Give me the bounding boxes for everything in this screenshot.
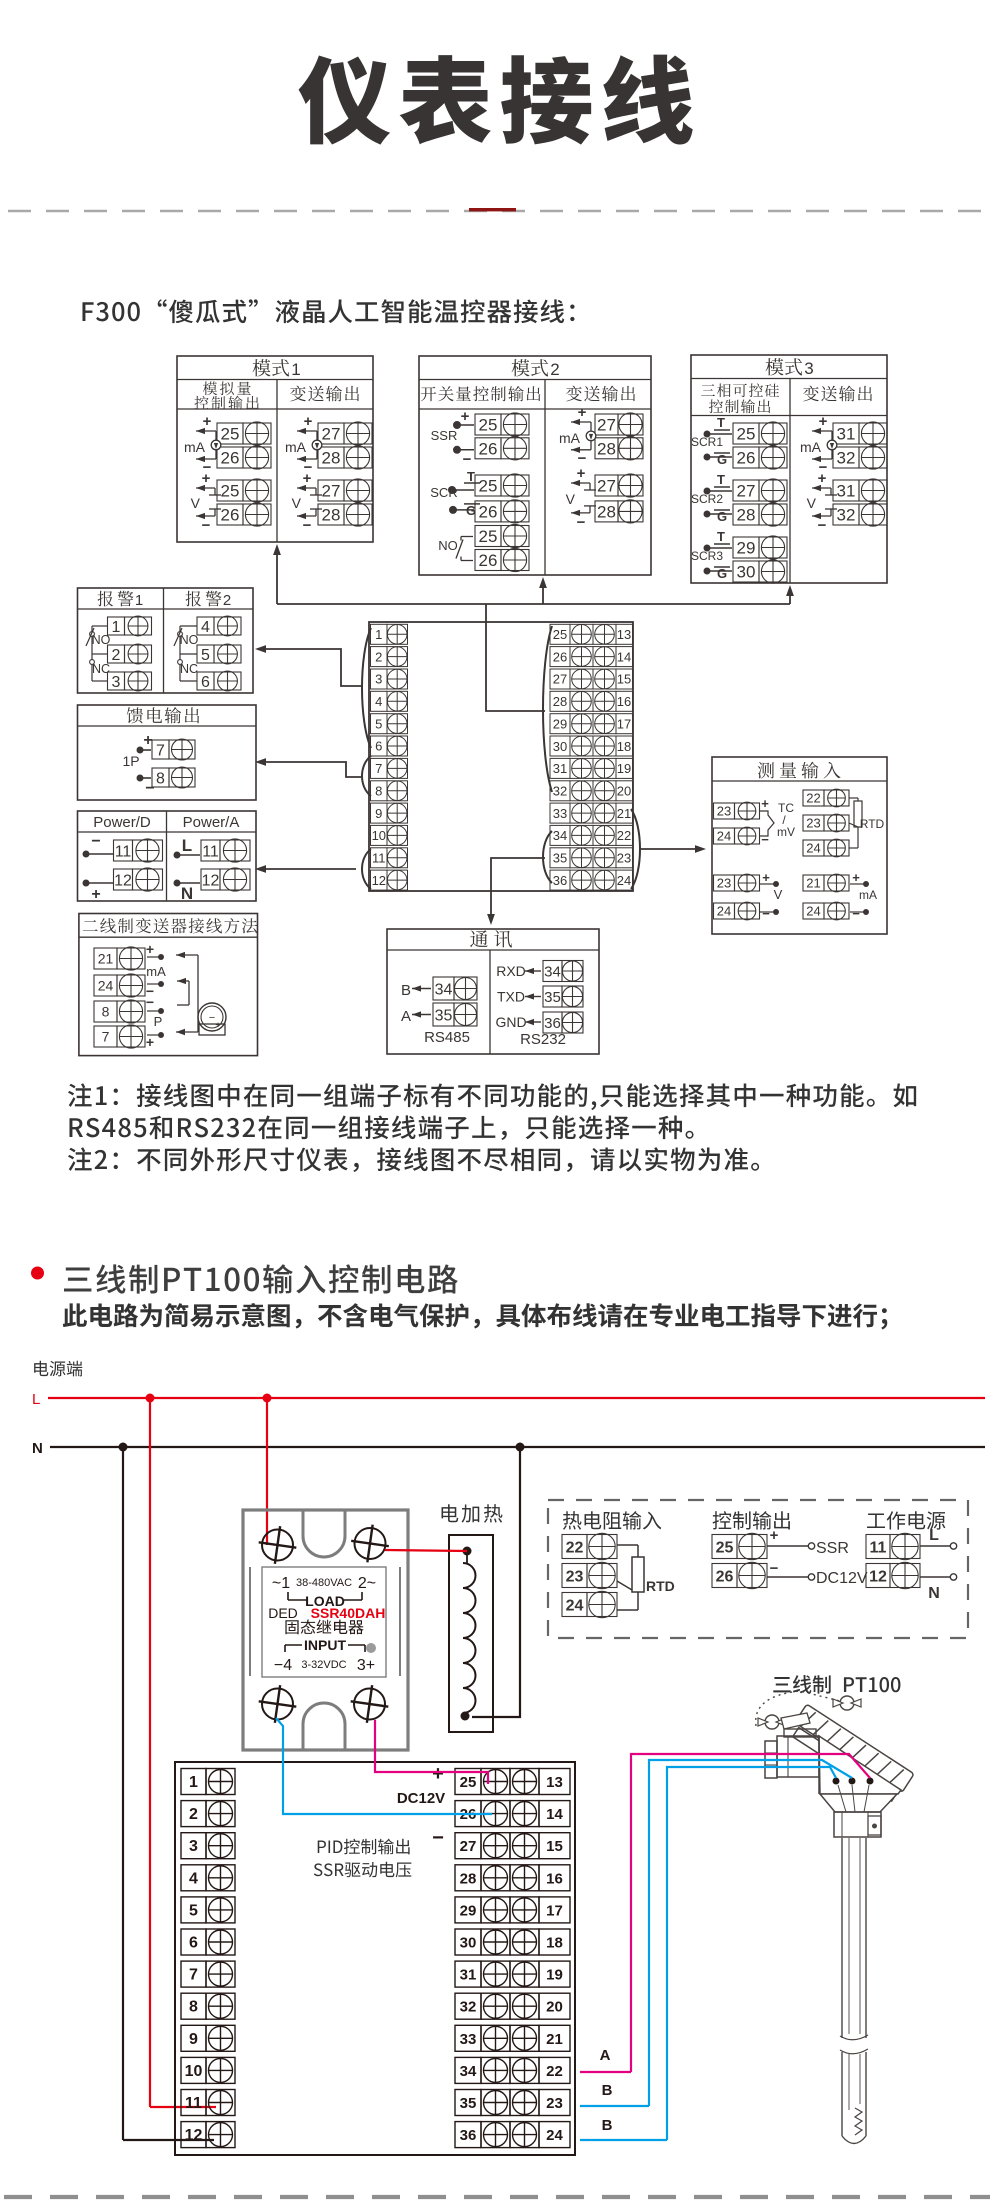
svg-text:−: − [146, 994, 154, 1010]
svg-text:9: 9 [189, 2031, 198, 2048]
svg-text:5: 5 [375, 716, 382, 731]
svg-text:28: 28 [322, 506, 341, 525]
svg-text:18: 18 [617, 739, 631, 754]
svg-text:+: + [303, 470, 312, 487]
svg-text:23: 23 [806, 816, 820, 831]
svg-text:19: 19 [546, 1967, 563, 1984]
svg-text:6: 6 [201, 674, 210, 691]
svg-text:23: 23 [546, 2095, 563, 2112]
svg-text:21: 21 [617, 806, 631, 821]
svg-text:−: − [577, 514, 586, 531]
svg-text:30: 30 [553, 739, 567, 754]
svg-text:23: 23 [566, 1568, 584, 1585]
svg-text:+: + [852, 870, 860, 885]
svg-text:1: 1 [375, 627, 382, 642]
svg-text:11: 11 [372, 851, 386, 866]
svg-text:mA: mA [559, 430, 581, 446]
svg-text:DED: DED [268, 1605, 298, 1621]
svg-text:7: 7 [156, 742, 165, 759]
svg-text:24: 24 [717, 829, 731, 844]
svg-text:1: 1 [112, 619, 121, 636]
svg-text:32: 32 [553, 784, 567, 799]
svg-text:+: + [143, 732, 152, 749]
svg-text:4: 4 [201, 619, 210, 636]
svg-text:NC: NC [92, 662, 110, 676]
svg-text:33: 33 [553, 806, 567, 821]
svg-text:27: 27 [597, 416, 616, 435]
svg-text:+: + [761, 796, 769, 811]
svg-text:23: 23 [617, 851, 631, 866]
svg-text:3: 3 [804, 359, 813, 378]
svg-text:+: + [146, 1034, 154, 1050]
svg-text:16: 16 [546, 1870, 563, 1887]
svg-text:8: 8 [102, 1004, 110, 1020]
svg-text:INPUT: INPUT [304, 1637, 346, 1653]
svg-text:5: 5 [189, 1902, 198, 1919]
svg-text:29: 29 [737, 539, 756, 558]
svg-text:−: − [770, 1560, 779, 1577]
svg-text:SCR1: SCR1 [691, 435, 723, 449]
svg-text:26: 26 [716, 1568, 734, 1585]
svg-text:−: − [762, 906, 770, 921]
svg-text:20: 20 [617, 784, 631, 799]
svg-text:T: T [467, 469, 475, 484]
svg-text:26: 26 [221, 449, 240, 468]
svg-text:V: V [566, 491, 576, 507]
svg-text:14: 14 [546, 1806, 563, 1823]
svg-text:−4: −4 [274, 1657, 292, 1674]
svg-text:26: 26 [479, 503, 498, 522]
svg-text:mA: mA [146, 964, 166, 979]
svg-text:TXD: TXD [497, 989, 525, 1005]
svg-text:3: 3 [375, 672, 382, 687]
svg-text:7: 7 [189, 1967, 198, 1984]
svg-text:27: 27 [460, 1838, 477, 1855]
svg-text:12: 12 [202, 872, 220, 889]
svg-text:+: + [202, 470, 211, 487]
svg-text:19: 19 [617, 761, 631, 776]
svg-text:6: 6 [375, 739, 382, 754]
svg-text:mA: mA [184, 439, 206, 455]
svg-text:23: 23 [717, 876, 731, 891]
svg-text:mA: mA [800, 439, 822, 455]
svg-text:28: 28 [553, 694, 567, 709]
svg-text:V: V [292, 495, 302, 511]
svg-text:N: N [181, 884, 193, 903]
svg-text:18: 18 [546, 1935, 563, 1952]
svg-text:24: 24 [806, 841, 820, 856]
svg-text:36: 36 [553, 873, 567, 888]
svg-text:22: 22 [546, 2063, 563, 2080]
svg-text:V: V [807, 495, 817, 511]
svg-text:35: 35 [435, 1007, 453, 1024]
svg-text:−: − [209, 1012, 215, 1024]
svg-text:+: + [146, 941, 154, 957]
svg-text:8: 8 [156, 770, 165, 787]
svg-text:31: 31 [553, 761, 567, 776]
svg-text:DC12V: DC12V [397, 1790, 445, 1807]
svg-text:RS485: RS485 [424, 1029, 470, 1046]
svg-text:34: 34 [544, 963, 561, 980]
svg-text:21: 21 [98, 951, 114, 967]
svg-text:25: 25 [716, 1539, 734, 1556]
svg-text:23: 23 [717, 804, 731, 819]
svg-text:A: A [401, 1008, 411, 1025]
svg-text:36: 36 [544, 1015, 561, 1032]
svg-text:B: B [401, 982, 411, 999]
svg-text:+: + [432, 1763, 444, 1785]
svg-text:−: − [761, 832, 769, 847]
svg-text:24: 24 [717, 904, 731, 919]
svg-text:26: 26 [553, 649, 567, 664]
svg-text:24: 24 [566, 1597, 584, 1614]
svg-text:24: 24 [806, 904, 820, 919]
svg-text:G: G [717, 509, 727, 524]
svg-text:10: 10 [372, 828, 386, 843]
svg-text:36: 36 [460, 2127, 477, 2144]
svg-text:1: 1 [291, 360, 300, 379]
svg-text:mA: mA [859, 888, 877, 902]
svg-text:DC12V: DC12V [816, 1570, 868, 1587]
svg-text:14: 14 [617, 649, 631, 664]
svg-text:7: 7 [375, 761, 382, 776]
svg-text:16: 16 [617, 694, 631, 709]
svg-text:27: 27 [597, 477, 616, 496]
svg-text:2~: 2~ [358, 1575, 376, 1592]
svg-text:V: V [774, 887, 783, 902]
svg-text:SSR: SSR [431, 428, 458, 443]
svg-text:32: 32 [837, 449, 856, 468]
svg-text:NO: NO [180, 633, 199, 647]
svg-text:3: 3 [112, 674, 121, 691]
svg-text:+: + [762, 870, 770, 885]
svg-text:SCR2: SCR2 [691, 492, 723, 506]
svg-text:24: 24 [546, 2127, 563, 2144]
svg-text:NO: NO [438, 538, 458, 553]
svg-text:25: 25 [737, 425, 756, 444]
svg-text:8: 8 [375, 783, 382, 798]
svg-text:+: + [577, 465, 586, 482]
svg-text:13: 13 [617, 627, 631, 642]
svg-text:SCR3: SCR3 [691, 549, 723, 563]
svg-text:+: + [203, 413, 212, 430]
svg-text:26: 26 [479, 439, 498, 458]
svg-text:35: 35 [553, 851, 567, 866]
svg-text:11: 11 [185, 2095, 202, 2112]
svg-text:27: 27 [322, 482, 341, 501]
svg-text:34: 34 [553, 828, 567, 843]
svg-text:1: 1 [189, 1774, 198, 1791]
svg-text:+: + [215, 1020, 220, 1030]
svg-text:SSR40DAH: SSR40DAH [311, 1605, 386, 1621]
svg-text:G: G [466, 503, 476, 518]
svg-text:L: L [32, 1391, 40, 1408]
svg-text:25: 25 [479, 477, 498, 496]
svg-text:Power/A: Power/A [183, 814, 240, 831]
svg-text:~1: ~1 [272, 1575, 290, 1592]
svg-text:2: 2 [112, 647, 121, 664]
svg-text:+: + [819, 413, 828, 430]
svg-text:15: 15 [617, 672, 631, 687]
svg-text:35: 35 [544, 989, 561, 1006]
svg-text:GND: GND [495, 1014, 526, 1030]
svg-text:−: − [202, 517, 211, 534]
svg-text:10: 10 [185, 2063, 203, 2080]
svg-text:31: 31 [837, 425, 856, 444]
svg-text:N: N [32, 1440, 43, 1457]
svg-text:−: − [463, 451, 472, 468]
svg-text:27: 27 [737, 482, 756, 501]
svg-text:+: + [818, 470, 827, 487]
svg-text:−: − [91, 833, 100, 850]
svg-text:5: 5 [201, 647, 210, 664]
svg-text:20: 20 [546, 1999, 563, 2016]
svg-text:−: − [303, 517, 312, 534]
svg-text:RTD: RTD [646, 1578, 675, 1594]
svg-text:32: 32 [837, 506, 856, 525]
svg-text:15: 15 [546, 1838, 563, 1855]
svg-text:24: 24 [98, 978, 114, 994]
svg-text:3-32VDC: 3-32VDC [301, 1659, 346, 1671]
svg-text:N: N [928, 1585, 940, 1602]
svg-text:34: 34 [435, 981, 453, 998]
svg-text:28: 28 [597, 439, 616, 458]
svg-text:34: 34 [460, 2063, 477, 2080]
svg-text:26: 26 [737, 449, 756, 468]
svg-text:25: 25 [221, 482, 240, 501]
svg-text:1: 1 [135, 592, 143, 609]
svg-text:NO: NO [92, 633, 111, 647]
svg-text:25: 25 [479, 527, 498, 546]
svg-text:T: T [717, 472, 725, 487]
svg-text:25: 25 [221, 425, 240, 444]
svg-text:A: A [600, 2047, 611, 2064]
svg-text:V: V [191, 495, 201, 511]
svg-text:G: G [717, 566, 727, 581]
svg-text:30: 30 [737, 563, 756, 582]
svg-text:NC: NC [180, 662, 198, 676]
svg-text:RS232: RS232 [520, 1031, 566, 1048]
svg-text:12: 12 [114, 872, 132, 889]
svg-text:T: T [717, 529, 725, 544]
svg-text:3+: 3+ [357, 1657, 375, 1674]
svg-text:17: 17 [546, 1902, 563, 1919]
svg-text:24: 24 [617, 873, 631, 888]
svg-text:L: L [929, 1527, 939, 1544]
svg-text:+: + [91, 886, 100, 903]
svg-text:4: 4 [375, 694, 382, 709]
svg-text:−: − [818, 517, 827, 534]
svg-text:7: 7 [102, 1029, 110, 1045]
svg-text:2: 2 [223, 592, 231, 609]
svg-text:13: 13 [546, 1774, 563, 1791]
svg-text:G: G [717, 452, 727, 467]
svg-text:RXD: RXD [496, 963, 526, 979]
svg-text:21: 21 [546, 2031, 563, 2048]
svg-text:29: 29 [460, 1902, 477, 1919]
svg-text:28: 28 [460, 1870, 477, 1887]
svg-text:27: 27 [322, 425, 341, 444]
svg-text:11: 11 [870, 1539, 887, 1556]
svg-text:11: 11 [115, 843, 132, 860]
svg-text:6: 6 [189, 1935, 198, 1952]
svg-text:28: 28 [597, 503, 616, 522]
svg-text:2: 2 [189, 1806, 198, 1823]
svg-text:33: 33 [460, 2031, 477, 2048]
svg-text:28: 28 [322, 449, 341, 468]
svg-text:4: 4 [189, 1870, 198, 1887]
svg-text:Power/D: Power/D [93, 814, 151, 831]
svg-text:TC: TC [778, 801, 794, 815]
svg-text:31: 31 [837, 482, 856, 501]
svg-text:27: 27 [553, 672, 567, 687]
svg-text:26: 26 [479, 551, 498, 570]
svg-text:B: B [602, 2082, 613, 2099]
svg-text:SCR: SCR [430, 485, 457, 500]
svg-text:SSR: SSR [816, 1540, 849, 1557]
svg-text:32: 32 [460, 1999, 477, 2016]
svg-text:mA: mA [285, 439, 307, 455]
svg-text:3: 3 [189, 1838, 198, 1855]
svg-text:25: 25 [460, 1774, 477, 1791]
svg-text:T: T [717, 415, 725, 430]
svg-text:9: 9 [375, 806, 382, 821]
svg-text:22: 22 [617, 828, 631, 843]
svg-text:21: 21 [806, 876, 820, 891]
svg-text:8: 8 [189, 1999, 198, 2016]
svg-text:11: 11 [202, 843, 219, 860]
svg-text:26: 26 [221, 506, 240, 525]
svg-text:P: P [154, 1014, 163, 1029]
svg-text:+: + [578, 404, 587, 421]
svg-text:25: 25 [553, 627, 567, 642]
svg-text:+: + [770, 1527, 779, 1544]
svg-text:17: 17 [617, 716, 631, 731]
svg-text:25: 25 [479, 416, 498, 435]
svg-text:1P: 1P [122, 753, 139, 769]
svg-text:12: 12 [869, 1568, 887, 1585]
svg-text:B: B [602, 2117, 613, 2134]
svg-text:2: 2 [375, 649, 382, 664]
svg-text:12: 12 [185, 2127, 203, 2144]
svg-text:RTD: RTD [860, 817, 885, 831]
svg-text:−: − [852, 906, 860, 921]
svg-text:12: 12 [372, 873, 386, 888]
svg-text:28: 28 [737, 506, 756, 525]
svg-text:38-480VAC: 38-480VAC [296, 1577, 352, 1589]
svg-text:31: 31 [460, 1967, 477, 1984]
svg-text:30: 30 [460, 1935, 477, 1952]
svg-text:+: + [461, 408, 470, 425]
svg-text:2: 2 [550, 360, 559, 379]
svg-text:+: + [304, 413, 313, 430]
svg-text:mV: mV [777, 825, 795, 839]
svg-text:−: − [145, 780, 154, 797]
svg-text:35: 35 [460, 2095, 477, 2112]
svg-text:−: − [432, 1827, 444, 1849]
svg-text:22: 22 [806, 791, 820, 806]
svg-text:29: 29 [553, 716, 567, 731]
svg-text:22: 22 [566, 1539, 584, 1556]
svg-text:L: L [182, 836, 192, 855]
